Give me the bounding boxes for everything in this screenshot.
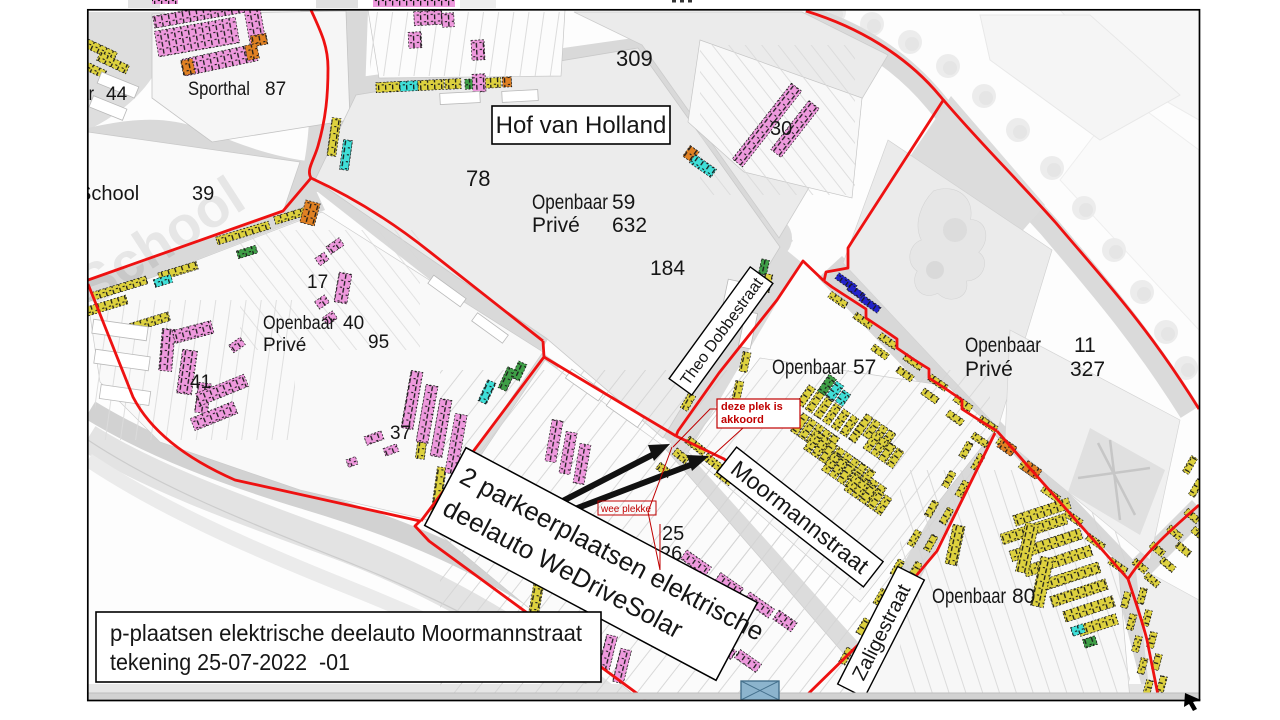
- svg-text:37: 37: [390, 423, 411, 444]
- svg-text:184: 184: [650, 257, 685, 280]
- svg-text:Openbaar: Openbaar: [965, 334, 1041, 357]
- svg-text:deze plek is: deze plek is: [721, 401, 783, 413]
- svg-text:41: 41: [190, 372, 211, 393]
- svg-text:40: 40: [343, 313, 364, 334]
- svg-text:59: 59: [612, 191, 635, 214]
- svg-text:Openbaar: Openbaar: [772, 356, 846, 379]
- svg-text:Openbaar: Openbaar: [932, 585, 1006, 608]
- svg-text:akkoord: akkoord: [721, 414, 764, 426]
- svg-text:tekening 25-07-2022 -01: tekening 25-07-2022 -01: [110, 649, 350, 675]
- svg-text:Openbaar: Openbaar: [263, 313, 336, 334]
- svg-text:Hof van Holland: Hof van Holland: [496, 112, 667, 139]
- svg-text:p-plaatsen elektrische deelaut: p-plaatsen elektrische deelauto Moormann…: [110, 620, 583, 646]
- svg-text:17: 17: [307, 272, 328, 293]
- svg-text:80: 80: [1012, 585, 1035, 608]
- svg-text:57: 57: [853, 356, 876, 379]
- svg-text:30: 30: [770, 118, 792, 140]
- svg-text:78: 78: [466, 166, 490, 191]
- svg-text:Privé: Privé: [263, 335, 306, 356]
- svg-text:Openbaar: Openbaar: [532, 191, 608, 214]
- svg-text:39: 39: [192, 183, 214, 205]
- svg-text:wee plekke: wee plekke: [600, 504, 651, 515]
- svg-text:11: 11: [1074, 334, 1096, 357]
- svg-text:632: 632: [612, 214, 647, 237]
- svg-text:309: 309: [616, 46, 653, 71]
- svg-text:95: 95: [368, 332, 389, 353]
- svg-text:Sporthal: Sporthal: [188, 79, 250, 100]
- svg-text:Privé: Privé: [532, 214, 580, 237]
- svg-text:25: 25: [662, 523, 684, 545]
- svg-text:Privé: Privé: [965, 358, 1013, 381]
- svg-text:44: 44: [106, 84, 128, 105]
- svg-text:327: 327: [1070, 358, 1105, 381]
- svg-text:87: 87: [265, 79, 286, 100]
